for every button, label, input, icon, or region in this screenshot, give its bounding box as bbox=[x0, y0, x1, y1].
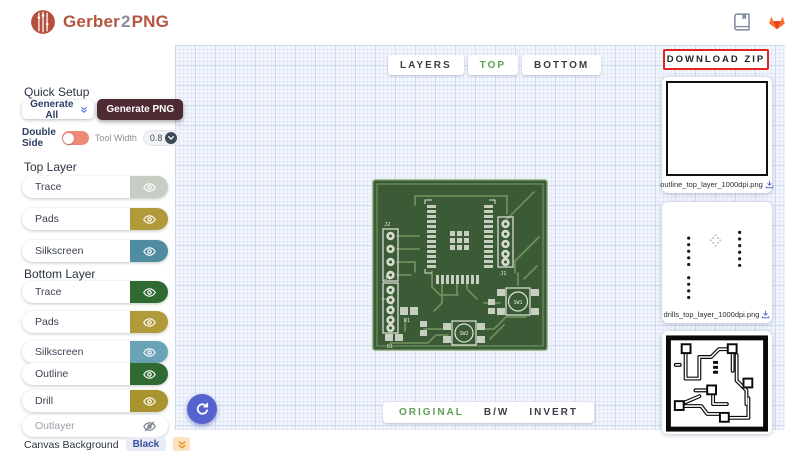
generate-png-button[interactable]: Generate PNG bbox=[97, 99, 183, 120]
bw-traces-thumbnail[interactable] bbox=[666, 335, 768, 432]
double-side-label: Double Side bbox=[22, 127, 56, 149]
visibility-toggle-button[interactable] bbox=[130, 208, 168, 230]
canvas-background-dropdown[interactable] bbox=[173, 437, 190, 451]
visibility-toggle-button[interactable] bbox=[130, 311, 168, 333]
download-card-drills: drills_top_layer_1000dpi.png bbox=[662, 202, 772, 323]
eye-icon bbox=[143, 245, 156, 258]
sidebar: Quick Setup Generate All Generate PNG Do… bbox=[0, 45, 175, 451]
layer-label: Trace bbox=[35, 181, 61, 193]
layer-label: Outline bbox=[35, 368, 68, 380]
downloads-panel: DOWNLOAD ZIP outline_top_layer_1000dpi.p… bbox=[662, 49, 774, 70]
generate-all-label: Generate All bbox=[29, 99, 75, 121]
download-card-bw-traces bbox=[662, 331, 772, 434]
chevron-double-down-icon bbox=[177, 440, 187, 450]
svg-text:D1: D1 bbox=[387, 344, 393, 350]
svg-text:SW1: SW1 bbox=[513, 300, 522, 306]
tool-width-label: Tool Width bbox=[95, 133, 137, 143]
pcb-preview[interactable]: J2 J4 J1 SW1 bbox=[372, 179, 548, 351]
svg-text:J2: J2 bbox=[384, 222, 391, 228]
tool-width-value: 0.8 bbox=[150, 133, 163, 143]
quick-setup-title: Quick Setup bbox=[24, 85, 89, 99]
logo-text-gerber: Gerber bbox=[63, 12, 120, 31]
layer-row-bottom-trace: Trace bbox=[22, 281, 168, 303]
logo-text-2: 2 bbox=[120, 12, 132, 31]
layer-row-top-pads: Pads bbox=[22, 208, 168, 230]
double-side-toggle[interactable] bbox=[62, 131, 89, 145]
svg-text:J1: J1 bbox=[500, 271, 507, 277]
toggle-knob bbox=[63, 133, 74, 144]
page: Gerber2PNG Quick Setup Generate All Gene… bbox=[0, 0, 800, 451]
download-icon[interactable] bbox=[761, 310, 770, 319]
drills-thumbnail[interactable] bbox=[666, 206, 768, 306]
tool-width-control: 0.8 bbox=[143, 130, 181, 146]
logo-text-png: PNG bbox=[132, 12, 169, 31]
tab-layers[interactable]: LAYERS bbox=[388, 55, 464, 75]
layer-row-drill: Drill bbox=[22, 390, 168, 412]
visibility-toggle-button[interactable] bbox=[130, 415, 168, 437]
svg-text:SW2: SW2 bbox=[459, 331, 468, 337]
layer-label: Silkscreen bbox=[35, 245, 83, 257]
layer-label: Trace bbox=[35, 286, 61, 298]
manual-book-icon[interactable] bbox=[732, 12, 752, 32]
logo-icon bbox=[30, 9, 56, 35]
chevron-down-icon bbox=[167, 134, 175, 142]
visibility-toggle-button[interactable] bbox=[130, 240, 168, 262]
double-side-row: Double Side Tool Width 0.8 bbox=[22, 127, 172, 149]
header-icons bbox=[732, 12, 786, 32]
eye-icon bbox=[143, 213, 156, 226]
app-logo[interactable]: Gerber2PNG bbox=[30, 9, 169, 35]
layer-label: Pads bbox=[35, 316, 59, 328]
visibility-toggle-button[interactable] bbox=[130, 363, 168, 385]
file-name-row: drills_top_layer_1000dpi.png bbox=[666, 308, 768, 321]
visibility-toggle-button[interactable] bbox=[130, 281, 168, 303]
generate-controls: Generate All Generate PNG bbox=[22, 99, 183, 120]
refresh-icon bbox=[195, 402, 210, 417]
tab-bottom[interactable]: BOTTOM bbox=[522, 55, 601, 75]
layer-row-top-silkscreen: Silkscreen bbox=[22, 240, 168, 262]
tool-width-stepper[interactable] bbox=[165, 132, 177, 144]
layer-row-bottom-pads: Pads bbox=[22, 311, 168, 333]
visibility-toggle-button[interactable] bbox=[130, 176, 168, 198]
layer-label: Outlayer bbox=[35, 420, 75, 432]
render-mode-tabs: ORIGINAL B/W INVERT bbox=[383, 402, 594, 423]
top-layer-title: Top Layer bbox=[24, 160, 77, 174]
visibility-toggle-button[interactable] bbox=[130, 341, 168, 363]
app-header: Gerber2PNG bbox=[0, 0, 800, 45]
tab-original[interactable]: ORIGINAL bbox=[389, 407, 474, 418]
tab-bw[interactable]: B/W bbox=[474, 407, 519, 418]
file-name-row: outline_top_layer_1000dpi.png bbox=[666, 178, 768, 191]
bottom-layer-title: Bottom Layer bbox=[24, 267, 95, 281]
eye-icon bbox=[143, 316, 156, 329]
outline-thumbnail[interactable] bbox=[666, 81, 768, 176]
layer-row-top-trace: Trace bbox=[22, 176, 168, 198]
layer-row-outlayer: Outlayer bbox=[22, 415, 168, 437]
eye-icon bbox=[143, 346, 156, 359]
download-card-outline: outline_top_layer_1000dpi.png bbox=[662, 77, 772, 193]
view-tabs: LAYERS TOP BOTTOM bbox=[388, 55, 601, 75]
eye-icon bbox=[143, 368, 156, 381]
canvas-background-row: Canvas Background Black bbox=[24, 437, 190, 451]
download-icon[interactable] bbox=[765, 180, 774, 189]
logo-text: Gerber2PNG bbox=[63, 12, 169, 32]
eye-icon bbox=[143, 286, 156, 299]
layer-label: Pads bbox=[35, 213, 59, 225]
file-name: outline_top_layer_1000dpi.png bbox=[660, 180, 763, 189]
file-name: drills_top_layer_1000dpi.png bbox=[664, 310, 760, 319]
eye-off-icon bbox=[143, 420, 156, 433]
canvas-background-value[interactable]: Black bbox=[126, 437, 167, 451]
layer-label: Silkscreen bbox=[35, 346, 83, 358]
canvas-background-label: Canvas Background bbox=[24, 439, 119, 451]
eye-icon bbox=[143, 395, 156, 408]
svg-text:J4: J4 bbox=[384, 276, 391, 282]
tab-invert[interactable]: INVERT bbox=[519, 407, 588, 418]
gitlab-icon[interactable] bbox=[766, 12, 786, 32]
layer-row-outline: Outline bbox=[22, 363, 168, 385]
svg-text:R1: R1 bbox=[404, 318, 410, 324]
eye-icon bbox=[143, 181, 156, 194]
chevron-double-down-icon bbox=[80, 105, 88, 115]
layer-label: Drill bbox=[35, 395, 53, 407]
download-zip-button[interactable]: DOWNLOAD ZIP bbox=[663, 49, 769, 70]
layer-row-bottom-silkscreen: Silkscreen bbox=[22, 341, 168, 363]
refresh-button[interactable] bbox=[187, 394, 217, 424]
generate-all-dropdown[interactable]: Generate All bbox=[22, 100, 94, 119]
tab-top[interactable]: TOP bbox=[468, 55, 518, 75]
visibility-toggle-button[interactable] bbox=[130, 390, 168, 412]
